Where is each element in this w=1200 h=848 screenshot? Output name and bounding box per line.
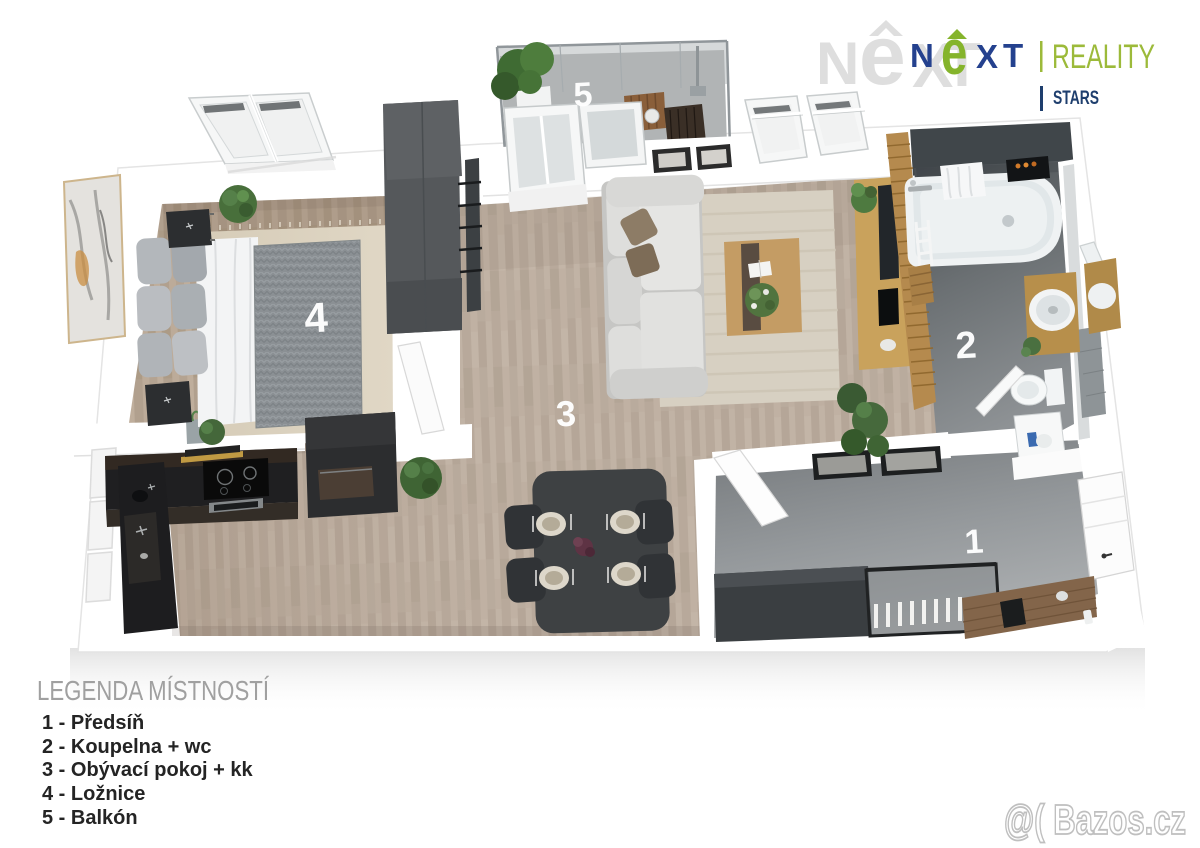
svg-text:5: 5 [573,76,594,115]
svg-text:1 - Předsíň: 1 - Předsíň [42,712,144,734]
svg-text:N: N [816,30,859,97]
svg-text:e: e [859,8,906,102]
svg-text:4: 4 [303,293,329,341]
svg-text:2 - Koupelna + wc: 2 - Koupelna + wc [42,736,211,758]
svg-text:2: 2 [954,324,977,367]
svg-text:@( Bazos.cz: @( Bazos.cz [1004,796,1186,843]
svg-text:X: X [976,38,998,75]
svg-text:5 - Balkón: 5 - Balkón [42,807,138,829]
svg-text:N: N [910,37,934,74]
svg-text:LEGENDA MÍSTNOSTÍ: LEGENDA MÍSTNOSTÍ [37,675,269,706]
svg-text:STARS: STARS [1053,88,1099,109]
svg-text:1: 1 [964,523,985,562]
svg-text:3: 3 [555,393,577,435]
svg-text:3 - Obývací pokoj + kk: 3 - Obývací pokoj + kk [42,759,254,781]
svg-text:4 - Ložnice: 4 - Ložnice [42,783,145,805]
svg-text:T: T [1003,37,1023,74]
svg-text:REALITY: REALITY [1052,38,1155,76]
svg-text:e: e [941,16,967,88]
